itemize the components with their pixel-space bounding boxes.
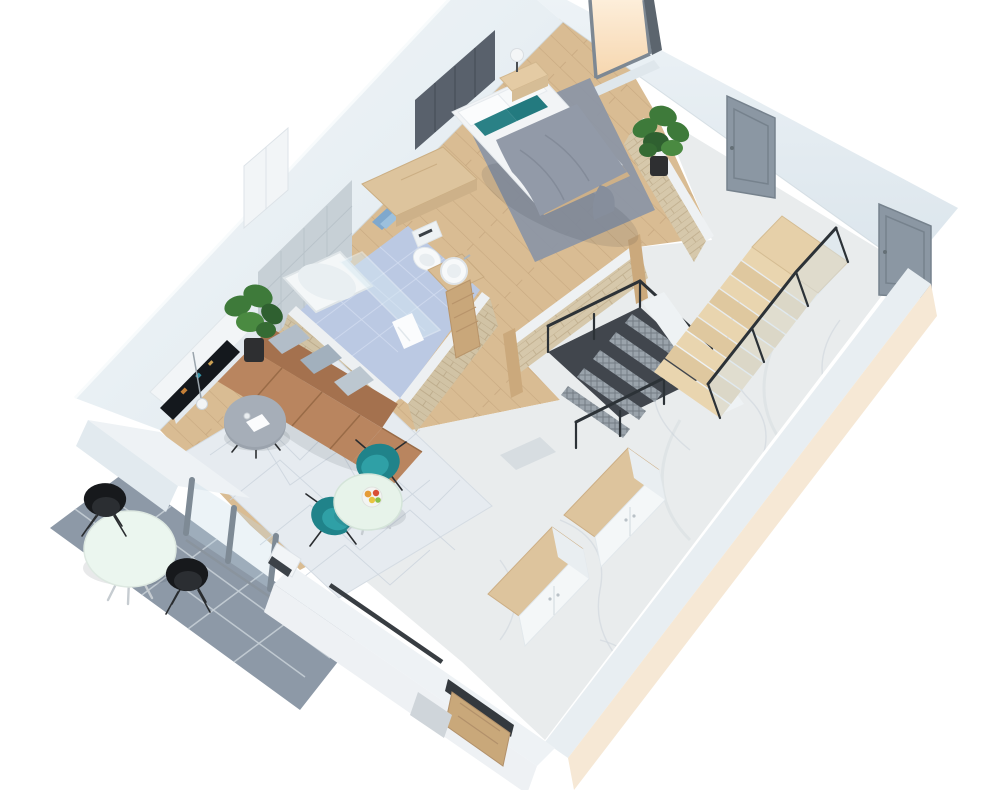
floorplan-canvas: [0, 0, 1000, 790]
plant-pot: [650, 156, 668, 176]
floorplan-render: [0, 0, 1000, 790]
plant-pot: [244, 338, 264, 362]
door-handle: [730, 146, 734, 150]
door-handle: [883, 250, 887, 254]
fruit-bowl: [362, 487, 382, 507]
